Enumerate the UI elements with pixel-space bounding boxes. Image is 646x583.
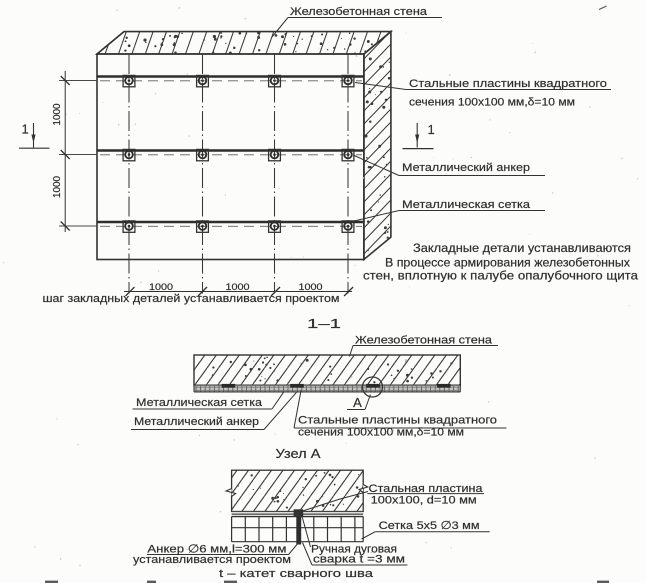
svg-text:1–1: 1–1 — [307, 316, 341, 331]
svg-text:Металлический анкер: Металлический анкер — [402, 162, 530, 174]
svg-text:шаг закладных деталей устанавл: шаг закладных деталей устанавливается пр… — [43, 293, 340, 305]
svg-text:1000: 1000 — [52, 176, 63, 198]
svg-text:1000: 1000 — [299, 282, 323, 293]
svg-text:Сетка 5х5 ∅3 мм: Сетка 5х5 ∅3 мм — [379, 520, 480, 532]
svg-text:Металлический анкер: Металлический анкер — [134, 416, 259, 428]
svg-text:А: А — [353, 395, 362, 410]
svg-text:1000: 1000 — [226, 282, 250, 293]
svg-text:1: 1 — [22, 122, 29, 137]
svg-text:В процессе армирования железоб: В процессе армирования железобетонных — [385, 258, 630, 270]
svg-text:1: 1 — [428, 122, 435, 137]
svg-text:стен, вплотную к палубе опалуб: стен, вплотную к палубе опалубочного щит… — [363, 271, 639, 283]
svg-text:Металлическая сетка: Металлическая сетка — [136, 397, 263, 409]
svg-text:1000: 1000 — [149, 282, 173, 293]
svg-text:сварка t =3 мм: сварка t =3 мм — [313, 554, 405, 566]
svg-text:t – катет сварного шва: t – катет сварного шва — [219, 568, 374, 580]
svg-text:Закладные детали устанавливают: Закладные детали устанавливаются — [413, 243, 631, 255]
svg-text:сечения 100х100 мм,δ=10 мм: сечения 100х100 мм,δ=10 мм — [298, 427, 464, 439]
svg-text:Узел А: Узел А — [276, 446, 321, 461]
svg-text:Стальные пластины квадратного: Стальные пластины квадратного — [409, 78, 607, 90]
svg-text:Железобетонная стена: Железобетонная стена — [355, 335, 493, 347]
svg-text:Металлическая сетка: Металлическая сетка — [402, 199, 531, 211]
svg-text:Стальные пластины квадратного: Стальные пластины квадратного — [298, 415, 497, 427]
svg-text:устанавливается проектом: устанавливается проектом — [133, 554, 291, 566]
svg-text:1000: 1000 — [52, 103, 63, 125]
svg-text:Железобетонная стена: Железобетонная стена — [290, 6, 428, 18]
svg-text:сечения 100х100 мм,δ=10 мм: сечения 100х100 мм,δ=10 мм — [409, 97, 575, 109]
svg-text:100х100, d=10 мм: 100х100, d=10 мм — [371, 495, 477, 507]
